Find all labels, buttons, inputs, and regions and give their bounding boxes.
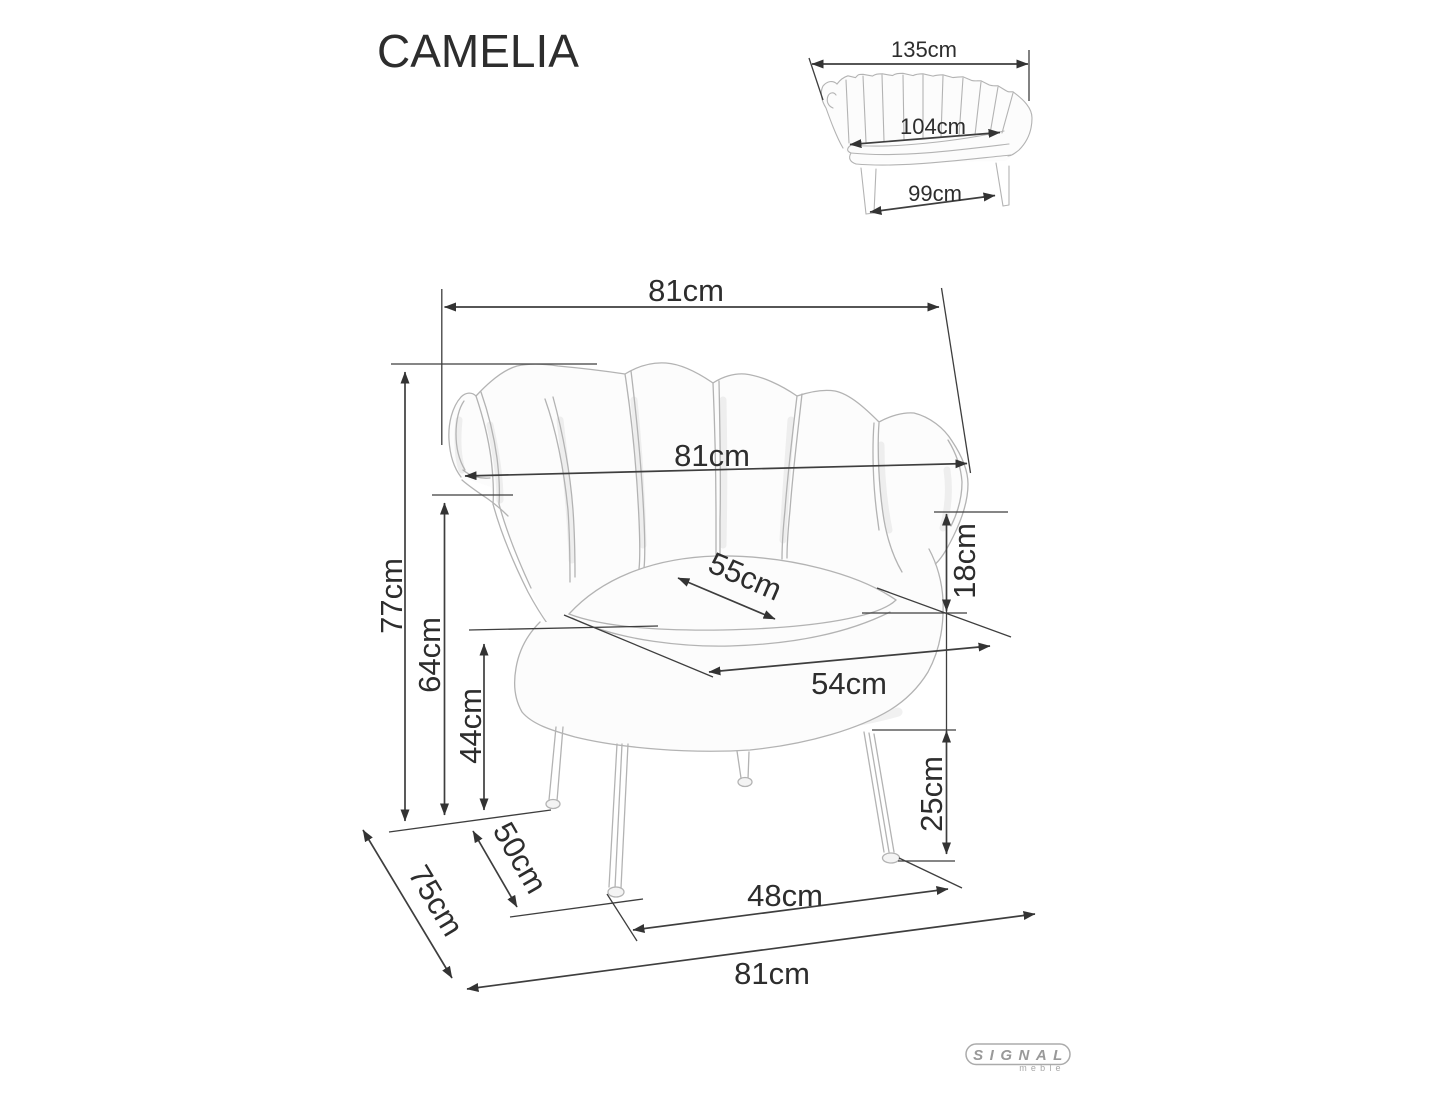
svg-text:44cm: 44cm [453, 688, 488, 764]
svg-text:SIGNAL: SIGNAL [973, 1047, 1069, 1064]
svg-text:81cm: 81cm [648, 273, 724, 308]
svg-text:meble: meble [1019, 1063, 1065, 1073]
svg-text:64cm: 64cm [412, 617, 447, 693]
svg-text:104cm: 104cm [900, 114, 966, 139]
svg-text:18cm: 18cm [947, 523, 982, 599]
svg-text:25cm: 25cm [914, 756, 949, 832]
svg-text:99cm: 99cm [908, 181, 962, 206]
svg-text:50cm: 50cm [486, 816, 554, 899]
svg-text:CAMELIA: CAMELIA [377, 25, 579, 77]
svg-text:81cm: 81cm [734, 956, 810, 991]
svg-text:48cm: 48cm [747, 878, 823, 913]
svg-text:81cm: 81cm [674, 438, 750, 473]
svg-text:54cm: 54cm [811, 666, 887, 701]
svg-text:77cm: 77cm [374, 558, 409, 634]
svg-text:75cm: 75cm [401, 859, 470, 942]
svg-text:135cm: 135cm [891, 37, 957, 62]
